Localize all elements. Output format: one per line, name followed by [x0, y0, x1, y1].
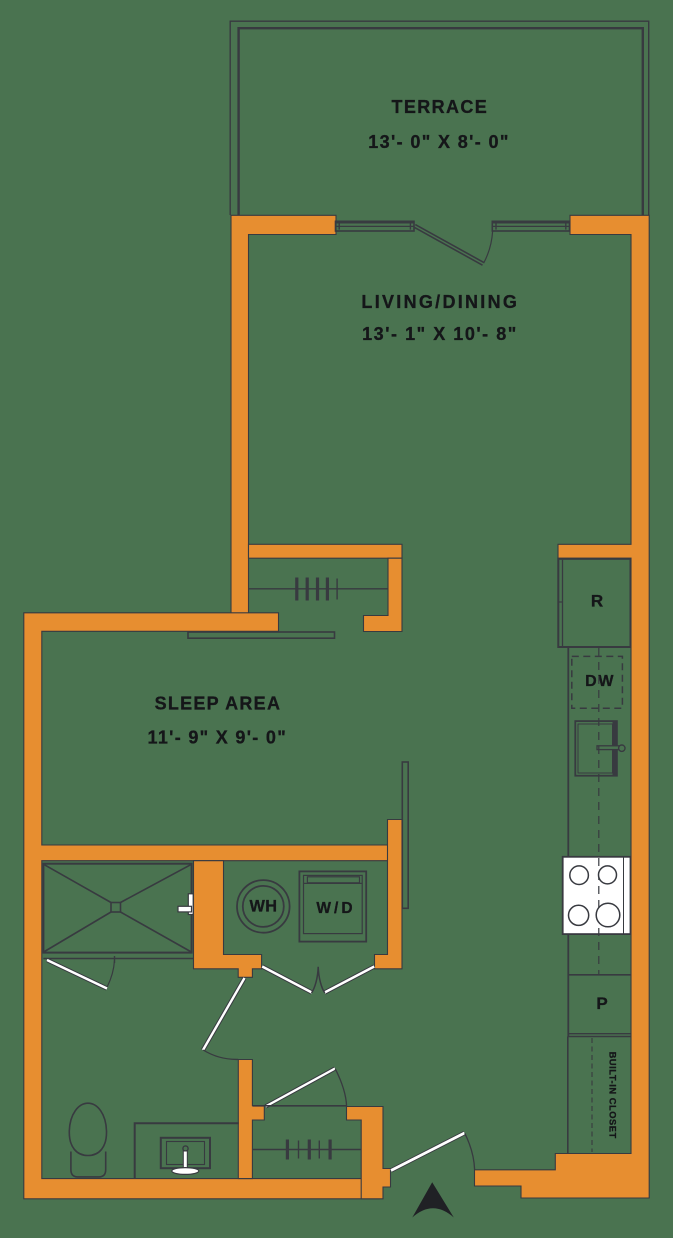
svg-text:WH: WH: [249, 897, 277, 915]
svg-text:SLEEP AREA: SLEEP AREA: [155, 693, 282, 713]
svg-text:BUILT-IN CLOSET: BUILT-IN CLOSET: [607, 1052, 617, 1139]
svg-text:13'- 1" X 10'- 8": 13'- 1" X 10'- 8": [362, 324, 518, 344]
svg-text:R: R: [591, 591, 603, 610]
svg-text:DW: DW: [585, 673, 615, 690]
svg-text:LIVING/DINING: LIVING/DINING: [361, 292, 519, 312]
svg-text:W/D: W/D: [316, 900, 355, 917]
svg-text:P: P: [596, 994, 607, 1013]
svg-text:TERRACE: TERRACE: [392, 97, 489, 117]
svg-text:13'- 0" X 8'- 0": 13'- 0" X 8'- 0": [368, 132, 510, 152]
svg-text:11'- 9" X 9'- 0": 11'- 9" X 9'- 0": [148, 727, 288, 747]
